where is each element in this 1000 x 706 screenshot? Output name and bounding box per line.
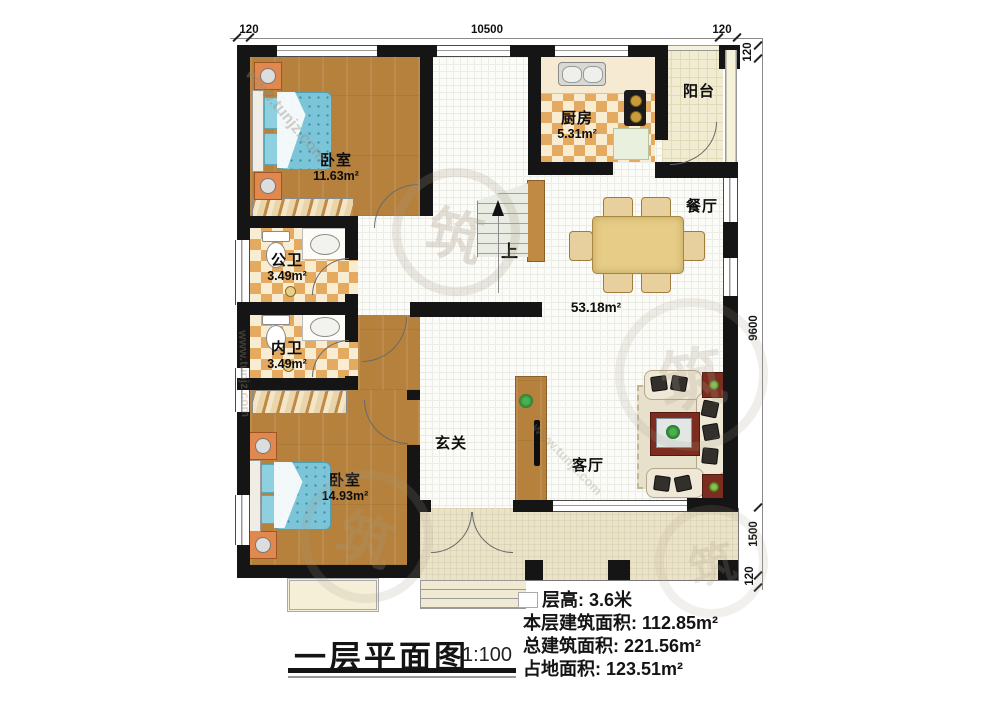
small-porch (287, 578, 379, 612)
porch-steps (420, 580, 526, 609)
room-area: 11.63m² (286, 169, 386, 183)
wall-corner-southeast (687, 498, 738, 512)
sink-basin (310, 317, 340, 337)
room-label-inner-bath: 内卫 3.49m² (237, 340, 337, 372)
room-label-balcony: 阳台 (669, 83, 729, 100)
nightstand (249, 432, 277, 460)
porch-column (718, 560, 738, 580)
sofa-pillow (702, 423, 721, 442)
dim-right-3: 1500 (748, 514, 760, 554)
title-underline-thick (288, 668, 516, 673)
room-label-public-bath: 公卫 3.49m² (237, 252, 337, 284)
hall-area-label: 53.18m² (546, 300, 646, 316)
porch-column (608, 560, 630, 580)
nightstand (254, 62, 282, 90)
window-inner-bath (235, 368, 250, 412)
wall-top (237, 45, 277, 57)
room-area: 14.93m² (295, 489, 395, 503)
wall-kitchen-south (528, 162, 613, 175)
sofa-bottom (646, 468, 704, 498)
room-area: 3.49m² (237, 357, 337, 371)
wall-kitchen-balcony (655, 45, 668, 140)
stove-burner (630, 111, 642, 123)
room-name: 卧室 (295, 472, 395, 489)
room-label-living: 客厅 (558, 457, 618, 474)
sink-basin (583, 66, 603, 83)
bed-pillow (264, 97, 278, 129)
wall-living-south (513, 500, 553, 512)
room-area: 3.49m² (237, 269, 337, 283)
window-hall-north (437, 45, 510, 57)
info-total-area: 总建筑面积: 221.56m² (523, 635, 718, 658)
window-bedroom2 (235, 495, 250, 545)
window-bedroom1 (277, 45, 377, 57)
sofa-pillow (701, 447, 719, 465)
info-floor-area: 本层建筑面积: 112.85m² (523, 612, 718, 635)
wall-bottom-west (237, 565, 420, 578)
room-label-kitchen: 厨房 5.31m² (527, 110, 627, 142)
tv (534, 420, 540, 466)
wall-hall-divider (410, 302, 542, 317)
sink-basin (562, 66, 582, 83)
wall-kitchen-west (528, 45, 541, 162)
title-scale: 1:100 (462, 644, 512, 667)
info-floor-height: 层高: 3.6米 (523, 589, 718, 612)
tv-cabinet (515, 376, 547, 502)
dim-top-left: 120 (229, 24, 269, 36)
plant-icon (519, 394, 533, 408)
floorplan-canvas: 卧室 11.63m² 公卫 3.49m² 内卫 3.49m² 卧室 14.93m… (0, 0, 1000, 706)
window-living-south (553, 500, 687, 512)
window-kitchen (555, 45, 628, 57)
balcony-rail-right (725, 50, 737, 165)
nightstand (249, 531, 277, 559)
wall-bedroom1-east (420, 45, 433, 216)
floor-drain (285, 286, 296, 297)
room-area: 5.31m² (527, 127, 627, 141)
dimension-line-right (762, 38, 763, 590)
room-label-dining: 餐厅 (672, 198, 732, 215)
room-label-bedroom2: 卧室 14.93m² (295, 472, 395, 504)
bed-pillow (261, 495, 275, 524)
info-block: 层高: 3.6米 本层建筑面积: 112.85m² 总建筑面积: 221.56m… (523, 589, 718, 681)
dining-chair (681, 231, 705, 261)
kitchen-sink (558, 62, 606, 86)
sofa-pillow (650, 375, 668, 392)
stairs-up-arrow-icon (492, 200, 504, 216)
dim-right-2: 9600 (748, 308, 760, 348)
window-dining-east (723, 258, 738, 296)
wall-right (723, 222, 738, 258)
sofa-pillow (674, 475, 693, 493)
bed-headboard (252, 90, 264, 172)
dim-right-4: 120 (744, 559, 756, 593)
stove (624, 90, 646, 126)
dining-chair (569, 231, 593, 261)
room-name: 卧室 (286, 152, 386, 169)
room-name: 公卫 (237, 252, 337, 269)
bed-pillow (264, 133, 278, 165)
wall-innerbath-south (237, 378, 358, 390)
dim-right-1: 120 (742, 35, 754, 69)
dim-top-right: 120 (702, 24, 742, 36)
bed-headboard (249, 460, 261, 532)
plant-icon (709, 380, 719, 390)
sofa-top (644, 370, 702, 400)
wall-bath-divider (237, 302, 358, 315)
room-label-foyer: 玄关 (421, 435, 481, 452)
room-name: 厨房 (527, 110, 627, 127)
title-underline-thin (288, 676, 516, 678)
sofa-pillow (653, 475, 671, 492)
room-label-bedroom1: 卧室 11.63m² (286, 152, 386, 184)
wall-right (723, 296, 738, 510)
dimension-line-top (230, 38, 762, 39)
nightstand (254, 172, 282, 200)
wardrobe-bedroom2 (252, 390, 347, 414)
toilet-tank (262, 315, 290, 325)
wall-bedroom2-east (407, 390, 420, 400)
wall-balcony-south (655, 162, 738, 178)
dim-top-center: 10500 (457, 24, 517, 36)
toilet-tank (262, 231, 290, 242)
bed-pillow (261, 464, 275, 493)
room-name: 内卫 (237, 340, 337, 357)
sofa-pillow (670, 375, 688, 393)
porch-column (525, 560, 543, 580)
dining-table (592, 216, 684, 274)
stairs-stringer (527, 180, 545, 262)
wall-bedroom1-south (237, 216, 358, 228)
info-footprint-area: 占地面积: 123.51m² (523, 658, 718, 681)
stairs-up-label: 上 (493, 242, 527, 262)
wall-bath-east (345, 228, 358, 260)
stove-burner (630, 95, 642, 107)
plant-icon (666, 425, 680, 439)
wall-bedroom2-east (407, 445, 420, 565)
sofa-pillow (701, 400, 720, 419)
wall-living-south (420, 500, 431, 512)
wall-top (628, 45, 657, 57)
plant-icon (709, 482, 719, 492)
sofa-right (696, 393, 726, 475)
